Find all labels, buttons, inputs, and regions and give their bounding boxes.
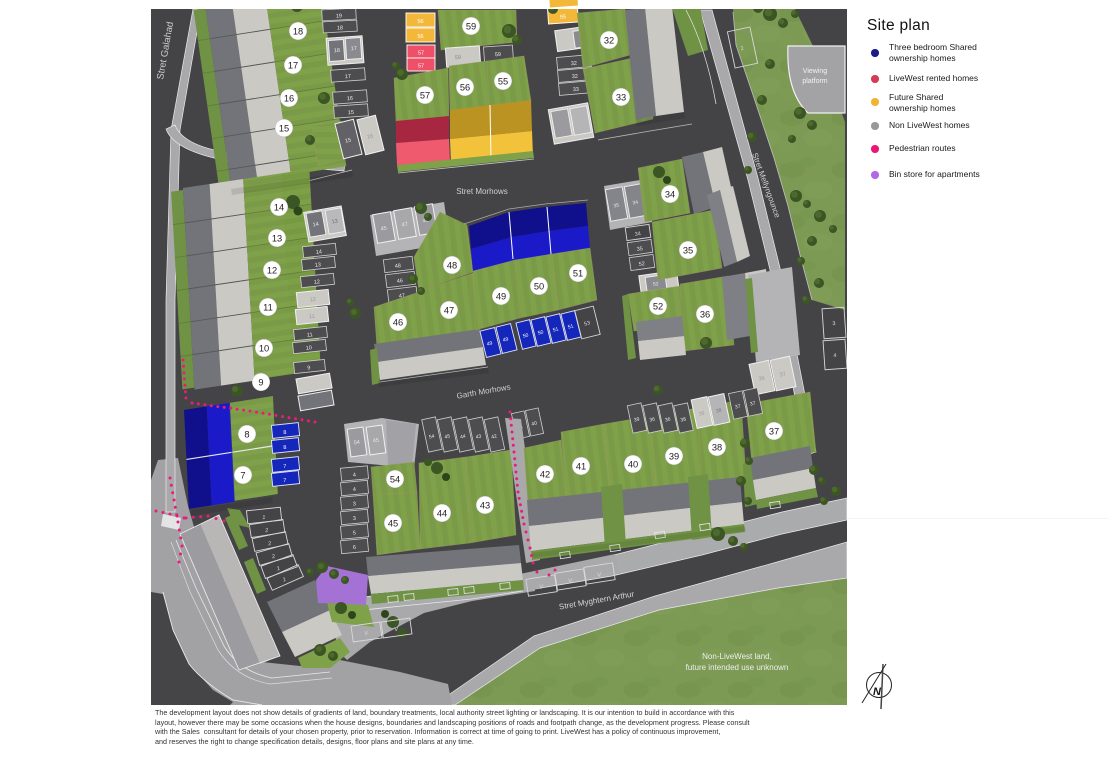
svg-text:37: 37 <box>779 371 786 378</box>
svg-text:19: 19 <box>336 13 342 19</box>
svg-text:8: 8 <box>244 429 249 439</box>
svg-text:18: 18 <box>334 48 341 54</box>
svg-text:39: 39 <box>669 451 679 461</box>
svg-text:4: 4 <box>833 353 836 359</box>
svg-text:57: 57 <box>420 90 430 100</box>
svg-text:35: 35 <box>683 245 693 255</box>
svg-text:34: 34 <box>665 189 675 199</box>
svg-text:52: 52 <box>638 261 645 268</box>
svg-text:46: 46 <box>396 278 403 285</box>
svg-text:57: 57 <box>418 51 424 57</box>
svg-text:33: 33 <box>573 87 580 94</box>
svg-text:40: 40 <box>628 459 638 469</box>
svg-text:51: 51 <box>573 268 583 278</box>
svg-text:7: 7 <box>283 464 287 470</box>
svg-text:11: 11 <box>307 332 313 339</box>
svg-text:55: 55 <box>560 14 567 20</box>
svg-text:3: 3 <box>832 321 835 327</box>
svg-text:16: 16 <box>284 93 294 103</box>
svg-text:56: 56 <box>417 19 423 25</box>
svg-text:4: 4 <box>353 472 357 478</box>
svg-text:6: 6 <box>353 545 357 551</box>
svg-text:45: 45 <box>372 438 379 445</box>
svg-text:9: 9 <box>258 377 263 387</box>
svg-text:12: 12 <box>267 265 277 275</box>
svg-text:17: 17 <box>345 74 352 80</box>
svg-text:36: 36 <box>758 375 765 382</box>
svg-text:10: 10 <box>259 343 269 353</box>
svg-text:9: 9 <box>307 365 311 371</box>
svg-text:Viewing: Viewing <box>803 68 827 75</box>
svg-text:37: 37 <box>769 426 779 436</box>
svg-text:7: 7 <box>283 478 287 484</box>
svg-text:36: 36 <box>700 309 710 319</box>
svg-text:32: 32 <box>572 74 579 81</box>
svg-text:3: 3 <box>353 516 357 522</box>
svg-text:Non-LiveWest land,: Non-LiveWest land, <box>702 652 772 661</box>
svg-text:47: 47 <box>444 305 454 315</box>
svg-text:43: 43 <box>480 500 490 510</box>
svg-text:11: 11 <box>309 314 315 321</box>
svg-text:46: 46 <box>393 317 403 327</box>
svg-text:15: 15 <box>279 123 289 133</box>
svg-text:41: 41 <box>576 461 586 471</box>
svg-text:13: 13 <box>331 219 338 226</box>
svg-text:8: 8 <box>283 445 287 451</box>
svg-text:5: 5 <box>353 530 357 536</box>
svg-text:44: 44 <box>437 508 447 518</box>
svg-text:13: 13 <box>272 233 282 243</box>
svg-text:32: 32 <box>604 35 614 45</box>
svg-text:10: 10 <box>306 345 313 352</box>
svg-text:35: 35 <box>636 246 643 253</box>
svg-text:Stret Morhows: Stret Morhows <box>456 187 508 196</box>
svg-text:7: 7 <box>240 470 245 480</box>
svg-text:future intended use unknown: future intended use unknown <box>686 663 789 672</box>
svg-text:59: 59 <box>495 52 502 58</box>
svg-text:8: 8 <box>283 430 287 436</box>
svg-text:18: 18 <box>337 25 343 31</box>
svg-text:54: 54 <box>353 440 360 447</box>
svg-text:48: 48 <box>447 260 457 270</box>
svg-text:34: 34 <box>634 231 641 238</box>
svg-text:17: 17 <box>288 60 298 70</box>
svg-text:33: 33 <box>616 92 626 102</box>
svg-text:52: 52 <box>653 301 663 311</box>
svg-text:59: 59 <box>466 21 476 31</box>
svg-text:45: 45 <box>388 518 398 528</box>
svg-text:1: 1 <box>262 515 266 521</box>
svg-text:54: 54 <box>390 474 400 484</box>
svg-text:16: 16 <box>347 96 354 102</box>
svg-text:14: 14 <box>274 202 284 212</box>
svg-text:14: 14 <box>312 222 319 229</box>
svg-text:platform: platform <box>802 78 827 85</box>
svg-text:47: 47 <box>401 222 408 229</box>
svg-text:18: 18 <box>293 26 303 36</box>
svg-text:42: 42 <box>540 469 550 479</box>
svg-text:3: 3 <box>353 501 357 507</box>
svg-text:32: 32 <box>571 61 578 68</box>
svg-text:13: 13 <box>315 262 322 269</box>
svg-text:4: 4 <box>353 487 357 493</box>
svg-text:15: 15 <box>348 110 355 116</box>
svg-text:17: 17 <box>351 46 358 52</box>
svg-text:52: 52 <box>653 281 660 288</box>
svg-text:59: 59 <box>455 55 462 61</box>
svg-text:56: 56 <box>460 82 470 92</box>
svg-text:N: N <box>873 686 882 698</box>
svg-text:38: 38 <box>712 442 722 452</box>
svg-text:12: 12 <box>310 297 317 304</box>
svg-text:49: 49 <box>496 291 506 301</box>
svg-text:55: 55 <box>498 76 508 86</box>
svg-text:57: 57 <box>418 64 424 70</box>
svg-text:14: 14 <box>316 249 323 256</box>
svg-text:56: 56 <box>417 34 423 40</box>
svg-text:12: 12 <box>314 279 321 286</box>
svg-text:45: 45 <box>380 226 387 233</box>
svg-text:11: 11 <box>263 302 273 312</box>
svg-text:48: 48 <box>394 263 401 270</box>
svg-text:50: 50 <box>534 281 544 291</box>
